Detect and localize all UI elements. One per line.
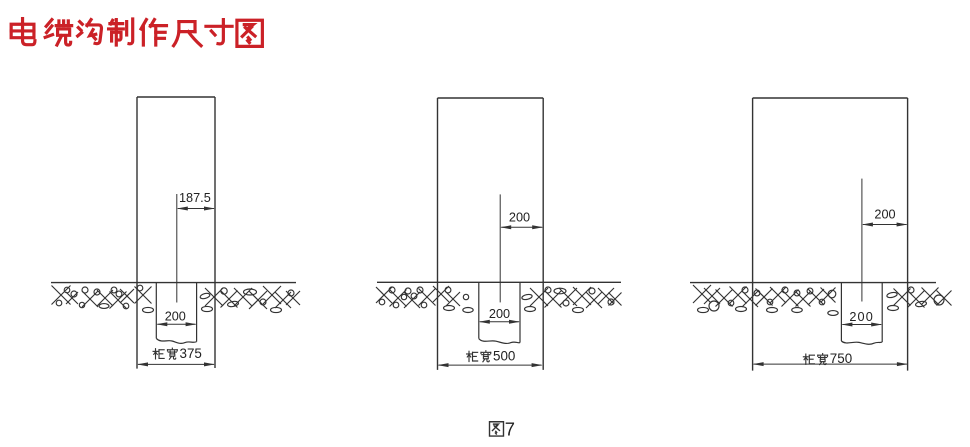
svg-text:500: 500 (493, 348, 515, 363)
svg-text:200: 200 (874, 208, 895, 222)
svg-text:750: 750 (830, 351, 852, 366)
svg-text:200: 200 (165, 310, 186, 324)
svg-text:200: 200 (849, 310, 873, 324)
svg-text:375: 375 (180, 346, 202, 361)
svg-text:200: 200 (489, 307, 510, 321)
svg-text:200: 200 (509, 210, 530, 224)
svg-text:7: 7 (505, 419, 515, 440)
svg-text:187.5: 187.5 (179, 191, 211, 205)
